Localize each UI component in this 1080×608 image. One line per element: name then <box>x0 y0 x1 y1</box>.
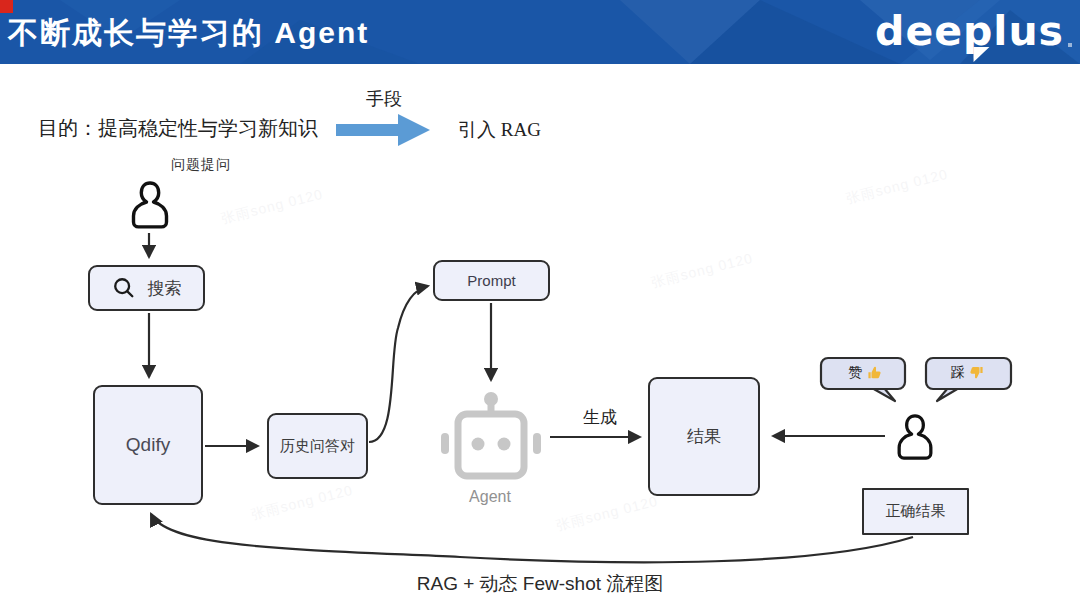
result-node-label: 结果 <box>687 425 721 448</box>
prompt-node: Prompt <box>433 260 550 301</box>
corner-accent <box>0 0 13 13</box>
thumbs-down-icon <box>969 365 984 380</box>
like-bubble-label: 赞 <box>849 364 863 382</box>
slide-canvas: 不断成长与学习的 Agent deeplus 目的：提高稳定性与学习新知识 手段… <box>0 0 1080 608</box>
qdify-node-label: Qdify <box>126 434 170 456</box>
caption: RAG + 动态 Few-shot 流程图 <box>0 571 1080 597</box>
watermark: 张雨song 0120 <box>844 166 950 209</box>
agent-label: Agent <box>438 488 542 506</box>
prompt-node-label: Prompt <box>467 272 515 289</box>
like-bubble: 赞 <box>819 356 911 404</box>
history-qa-node: 历史问答对 <box>267 413 368 479</box>
watermark: 张雨song 0120 <box>649 250 755 293</box>
correct-result-node-label: 正确结果 <box>886 502 946 521</box>
user-icon-top <box>128 180 172 230</box>
logo-dot-icon <box>1068 43 1072 47</box>
edge-feedback-to-qdify <box>151 514 913 562</box>
search-node-label: 搜索 <box>148 277 182 300</box>
deeplus-logo-text: deeplus <box>875 7 1064 55</box>
watermark: 张雨song 0120 <box>554 493 660 536</box>
robot-agent-icon <box>438 387 542 483</box>
dislike-bubble: 踩 <box>921 356 1013 404</box>
means-arrow-label: 手段 <box>336 87 432 111</box>
search-icon <box>112 276 136 300</box>
question-label: 问题提问 <box>171 156 231 174</box>
user-icon-right <box>893 413 937 461</box>
edge-history-to-prompt <box>369 286 428 442</box>
thumbs-up-icon <box>867 365 882 380</box>
page-title: 不断成长与学习的 Agent <box>8 13 369 54</box>
purpose-text: 目的：提高稳定性与学习新知识 <box>38 115 318 142</box>
qdify-node: Qdify <box>93 385 203 505</box>
means-block-arrow-icon <box>336 112 432 148</box>
watermark: 张雨song 0120 <box>249 482 355 525</box>
deeplus-logo: deeplus <box>875 7 1064 59</box>
correct-result-node: 正确结果 <box>862 488 969 535</box>
rag-intro-text: 引入 RAG <box>458 117 541 143</box>
result-node: 结果 <box>648 377 760 496</box>
watermark: 张雨song 0120 <box>219 186 325 229</box>
search-node: 搜索 <box>88 265 205 311</box>
header-bar: 不断成长与学习的 Agent deeplus <box>0 0 1080 64</box>
generate-edge-label: 生成 <box>574 406 626 429</box>
history-qa-node-label: 历史问答对 <box>280 437 355 456</box>
dislike-bubble-label: 踩 <box>951 364 965 382</box>
